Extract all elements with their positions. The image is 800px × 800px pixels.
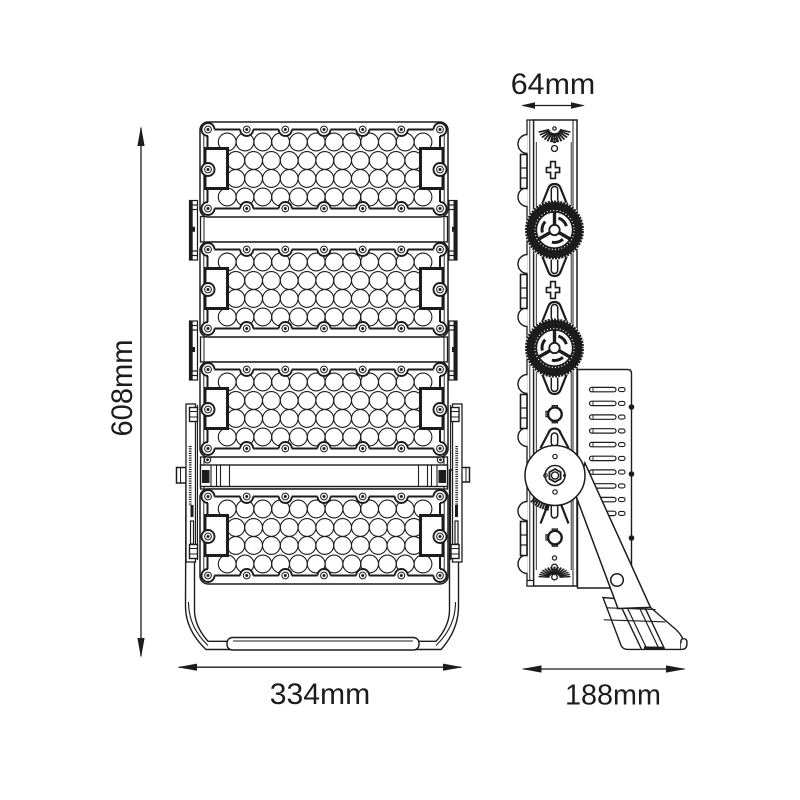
svg-text:64mm: 64mm — [511, 68, 596, 101]
svg-text:608mm: 608mm — [106, 340, 139, 437]
svg-text:188mm: 188mm — [565, 680, 661, 712]
svg-text:334mm: 334mm — [270, 678, 371, 711]
